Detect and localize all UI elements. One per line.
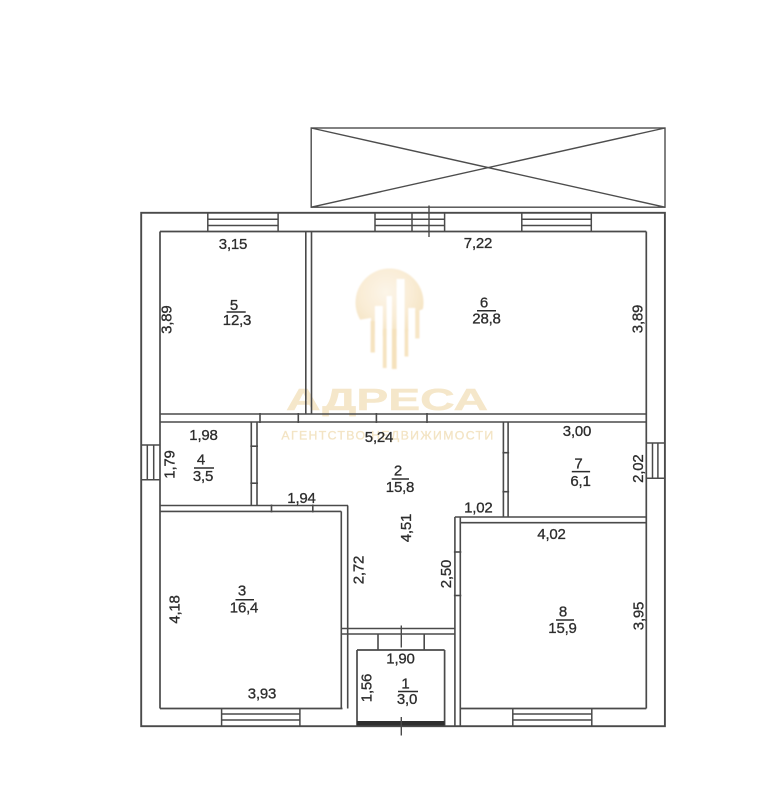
svg-text:15,8: 15,8 [386,479,414,496]
svg-text:28,8: 28,8 [472,310,500,327]
svg-text:3,15: 3,15 [219,236,247,253]
svg-text:6,1: 6,1 [570,473,590,490]
svg-text:1,98: 1,98 [189,427,217,444]
svg-text:4,18: 4,18 [166,595,183,623]
svg-text:2: 2 [394,462,402,479]
svg-text:2,02: 2,02 [630,454,647,482]
svg-text:1,02: 1,02 [464,499,492,516]
svg-text:5,24: 5,24 [365,429,393,446]
svg-text:3: 3 [238,582,246,599]
svg-text:15,9: 15,9 [548,620,576,637]
svg-text:1,79: 1,79 [161,450,178,478]
svg-text:6: 6 [480,294,488,311]
svg-text:7: 7 [574,455,582,472]
svg-text:2,72: 2,72 [351,556,368,584]
svg-text:1: 1 [401,675,409,692]
svg-text:1,94: 1,94 [287,490,315,507]
svg-text:АДРЕСА: АДРЕСА [286,382,488,417]
svg-text:3,5: 3,5 [193,468,213,485]
svg-text:1,56: 1,56 [358,674,375,702]
svg-text:16,4: 16,4 [230,599,258,616]
svg-text:8: 8 [559,603,567,620]
svg-text:3,93: 3,93 [248,685,276,702]
svg-text:2,50: 2,50 [438,560,455,588]
svg-text:3,00: 3,00 [563,423,591,440]
svg-text:12,3: 12,3 [223,312,251,329]
svg-text:4: 4 [197,451,205,468]
svg-text:4,02: 4,02 [537,526,565,543]
svg-text:3,89: 3,89 [629,305,646,333]
svg-text:1,90: 1,90 [386,650,414,667]
svg-text:4,51: 4,51 [398,514,415,542]
svg-text:3,95: 3,95 [630,602,647,630]
svg-text:7,22: 7,22 [464,235,492,252]
svg-text:3,0: 3,0 [397,691,417,708]
svg-text:3,89: 3,89 [159,305,176,333]
